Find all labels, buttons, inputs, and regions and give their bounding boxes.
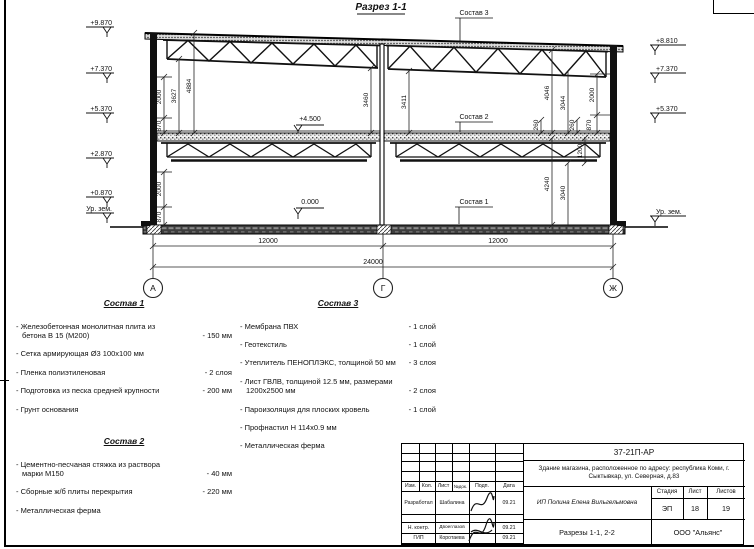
svg-text:+9.870: +9.870 [90,20,112,27]
tb-role: Разработал [402,491,435,514]
elevation-mark: +8.810 [650,38,686,55]
list-item: - Металлическая ферма [16,506,232,515]
list-item: - Геотекстиль- 1 слой [240,340,436,349]
tb-col-izm: Изм. [402,481,419,491]
signature-scribble [468,492,496,515]
axis-label-zh: Ж [609,283,617,293]
composition-title: Состав 3 [240,298,436,309]
elevation-mark-ground: Ур. зем. [86,206,114,223]
frame-center-tick [0,380,9,381]
tb-line [402,453,523,454]
svg-text:+7.370: +7.370 [656,66,678,73]
tb-name: Коротаева [435,533,469,543]
tb-role: Н. контр. [402,522,435,533]
list-item: - Грунт основания [16,405,232,414]
elevation-marks-right: +8.810 +7.370 +5.370 Ур. зем. [650,38,686,226]
list-item: - Железобетонная монолитная плита из бет… [16,322,232,341]
tb-date: 09.21 [495,533,523,543]
dim-label: 2000 [156,89,163,104]
svg-text:+5.370: +5.370 [656,106,678,113]
axis-label-a: А [150,283,156,293]
svg-text:Состав 2: Состав 2 [459,114,488,121]
dim-label: 870 [156,120,163,131]
tb-company: ООО "Альянс" [651,519,745,546]
svg-text:+0.870: +0.870 [90,190,112,197]
list-item: - Цементно-песчаная стяжка из раствора м… [16,460,232,479]
list-item: - Сборные ж/б плиты перекрытия- 220 мм [16,487,232,496]
axis-label-g: Г [381,283,386,293]
elevation-mark: +9.870 [86,20,114,37]
elevation-mark: +0.870 [86,190,114,207]
floor-level-marks: +4.500 0.000 [294,116,324,219]
list-item: - Мембрана ПВХ- 1 слой [240,322,436,331]
elevation-mark: +7.370 [650,66,686,83]
span-dim-label: 12000 [258,238,278,245]
dim-label: 260 [533,119,540,130]
ground-floor-slab [110,225,668,234]
elevation-mark: +5.370 [650,106,686,123]
dim-label: 2000 [589,87,596,102]
section-title-text: Разрез 1-1 [355,2,407,13]
dim-label: 3411 [401,95,408,109]
svg-text:+7.370: +7.370 [90,66,112,73]
svg-text:+5.370: +5.370 [90,106,112,113]
tb-line [402,461,523,462]
callout-sostav-1: Состав 1 [455,199,493,224]
tb-sheets-value: 19 [707,498,745,519]
roof-truss-right [386,46,608,78]
tb-col-dok: №док. [452,481,469,491]
tb-col-list: Лист [435,481,452,491]
list-item: - Профнастил Н 114x0.9 мм [240,423,436,432]
tb-line [402,543,523,544]
dim-label: 4884 [186,78,193,93]
floor-truss-left [161,143,376,161]
callout-sostav-3: Состав 3 [455,10,493,42]
dim-label: 260 [569,119,576,130]
elevation-mark: +7.370 [86,66,114,83]
callout-sostav-2: Состав 2 [455,114,493,132]
tb-name: Двоеглазов [435,522,469,533]
svg-text:0.000: 0.000 [301,199,319,206]
tb-date: 09.21 [495,522,523,533]
tb-sheet-label: Лист [683,486,707,498]
drawing-sheet: { "sheet": { "section_title": "Разрез 1-… [0,0,754,549]
composition-list-3: Состав 3 - Мембрана ПВХ- 1 слой - Геотек… [240,298,436,460]
wall-left-base [141,221,150,226]
tb-doc-number: 37-21П-АР [523,444,745,460]
svg-text:+4.500: +4.500 [299,116,321,123]
elevation-mark: +2.870 [86,151,114,168]
tb-col-podp: Подп. [469,481,495,491]
composition-title: Состав 2 [16,436,232,447]
svg-text:Ур. зем.: Ур. зем. [86,206,112,213]
tb-line [402,471,523,472]
tb-role: ГИП [402,533,435,543]
tb-sheet-title: Разрезы 1-1, 2-2 [523,519,651,546]
list-item: - Лист ГВЛВ, толщиной 12.5 мм, размерами… [240,377,436,396]
composition-list-2: Состав 2 - Цементно-песчаная стяжка из р… [16,436,232,524]
dim-label: 3044 [560,95,567,110]
svg-text:Состав 3: Состав 3 [459,10,488,17]
tb-sheet-value: 18 [683,498,707,519]
tb-col-kol: Кол. [419,481,435,491]
dim-label: 4240 [544,176,551,191]
dim-label: 3460 [363,92,370,107]
floor-truss-right [390,143,606,161]
svg-text:+8.810: +8.810 [656,38,678,45]
signature-scribble [466,518,496,545]
tb-object-name: Здание магазина, расположенное по адресу… [525,460,743,486]
elevation-mark-ground: Ур. зем. [650,209,686,226]
dim-label: 1200 [577,143,584,158]
level-mark-zero: 0.000 [294,199,324,219]
tb-stage-value: ЭП [651,498,683,519]
list-item: - Пленка полиэтиленовая- 2 слоя [16,368,232,377]
dim-label: 3627 [171,88,178,103]
span-dim-label: 12000 [488,238,508,245]
tb-sheets-label: Листов [707,486,745,498]
list-item: - Сетка армирующая Ø3 100x100 мм [16,349,232,358]
dim-label: 870 [586,119,593,130]
total-dim-label: 24000 [363,259,383,266]
roof-truss-left [163,40,380,68]
column-center [380,44,384,225]
svg-text:Ур. зем.: Ур. зем. [656,209,682,216]
bottom-dimensions [150,234,616,278]
svg-text:+2.870: +2.870 [90,151,112,158]
wall-right-base [617,221,626,226]
wall-right [610,45,617,225]
level-mark-mid: +4.500 [294,116,324,133]
svg-text:Состав 1: Состав 1 [459,199,488,206]
list-item: - Утеплитель ПЕНОПЛЭКС, толщиной 50 мм- … [240,358,436,367]
dimension-labels: 2000 870 3627 4884 2000 870 3460 3411 40… [156,78,596,222]
composition-list-1: Состав 1 - Железобетонная монолитная пли… [16,298,232,423]
tb-line [402,514,523,515]
elevation-mark: +5.370 [86,106,114,123]
composition-title: Состав 1 [16,298,232,309]
dim-label: 2000 [156,181,163,196]
tb-date: 09.21 [495,491,523,514]
dim-label: 4046 [544,85,551,100]
axis-bubbles: А Г Ж [144,279,623,298]
title-block: Изм. Кол. Лист №док. Подп. Дата Разработ… [401,443,744,545]
list-item: - Пароизоляция для плоских кровель- 1 сл… [240,405,436,414]
tb-designer: ИП Полина Елена Вильгельмовна [523,486,651,519]
tb-name: Шабалина [435,491,469,514]
dim-label: 870 [156,211,163,222]
section-drawing: Разрез 1-1 [0,0,754,300]
elevation-marks-left: +9.870 +7.370 +5.370 +2.870 +0.870 Ур. з… [86,20,114,223]
tb-stage-label: Стадия [651,486,683,498]
list-item: - Подготовка из песка средней крупности-… [16,386,232,395]
dim-label: 3040 [560,185,567,200]
tb-col-data: Дата [495,481,523,491]
section-title: Разрез 1-1 [355,2,407,14]
